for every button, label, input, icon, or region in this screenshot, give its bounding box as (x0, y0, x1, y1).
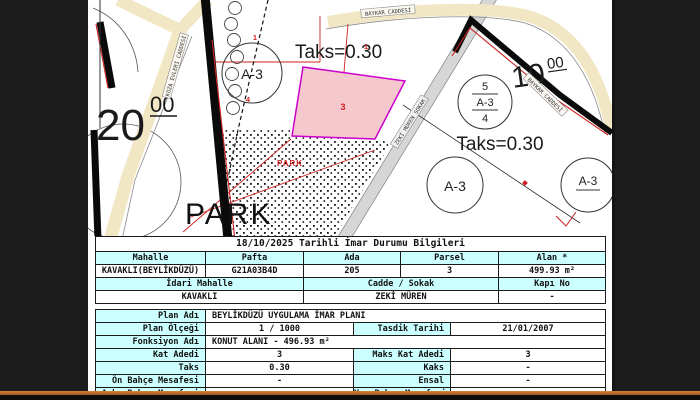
fraction-mid: A-3 (476, 97, 493, 109)
value-ada: 205 (304, 265, 401, 278)
label-plan-olcegi: Plan Ölçeği (96, 323, 206, 336)
value-plan-adi: BEYLİKDÜZÜ UYGULAMA İMAR PLANI (206, 310, 606, 323)
header-pafta: Pafta (206, 252, 304, 265)
table-row: KAVAKLI ZEKİ MÜREN - (96, 291, 606, 304)
header-kapi-no: Kapı No (499, 278, 606, 291)
value-idari-mahalle: KAVAKLI (96, 291, 304, 304)
taks-label-2: Taks=0.30 (456, 134, 543, 155)
value-tasdik-tarihi: 21/01/2007 (451, 323, 606, 336)
label-kat-adedi: Kat Adedi (96, 349, 206, 362)
value-kapi-no: - (499, 291, 606, 304)
parcel-number-3: 3 (340, 102, 345, 112)
fraction-top: 5 (482, 81, 488, 93)
value-kaks: - (451, 362, 606, 375)
value-on-bahce: - (206, 375, 354, 388)
label-tasdik-tarihi: Tasdik Tarihi (354, 323, 451, 336)
value-plan-olcegi: 1 / 1000 (206, 323, 354, 336)
table-row: Plan Adı BEYLİKDÜZÜ UYGULAMA İMAR PLANI (96, 310, 606, 323)
header-mahalle: Mahalle (96, 252, 206, 265)
parcel-number-1: 1 (253, 33, 257, 42)
label-taks: Taks (96, 362, 206, 375)
zone-label-4: A-3 (579, 174, 598, 188)
table-row: KAVAKLI(BEYLİKDÜZÜ) G21A03B4D 205 3 499.… (96, 265, 606, 278)
header-parsel: Parsel (401, 252, 499, 265)
header-cadde-sokak: Cadde / Sokak (304, 278, 499, 291)
label-plan-adi: Plan Adı (96, 310, 206, 323)
table-row: İdari Mahalle Cadde / Sokak Kapı No (96, 278, 606, 291)
value-cadde-sokak: ZEKİ MÜREN (304, 291, 499, 304)
plan-detail-table: Plan Adı BEYLİKDÜZÜ UYGULAMA İMAR PLANI … (95, 309, 606, 391)
fraction-bottom: 4 (482, 113, 488, 125)
value-pafta: G21A03B4D (206, 265, 304, 278)
table-row: Fonksiyon Adı KONUT ALANI - 496.93 m² (96, 336, 606, 349)
label-fonksiyon-adi: Fonksiyon Adı (96, 336, 206, 349)
header-ada: Ada (304, 252, 401, 265)
bottom-dark-strip (0, 395, 700, 400)
imar-durumu-document-page: A-3 5 A-3 4 A-3 A-3 20 00 10 00 Taks=0.3… (88, 0, 615, 391)
taks-label-1: Taks=0.30 (295, 42, 382, 63)
value-maks-kat-adedi: 3 (451, 349, 606, 362)
label-emsal: Ensal (354, 375, 451, 388)
zoning-map: A-3 5 A-3 4 A-3 A-3 20 00 10 00 Taks=0.3… (88, 0, 612, 236)
park-label-small: PARK (277, 159, 303, 168)
value-mahalle: KAVAKLI(BEYLİKDÜZÜ) (96, 265, 206, 278)
value-emsal: - (451, 375, 606, 388)
label-on-bahce: Ön Bahçe Mesafesi (96, 375, 206, 388)
park-label-large: PARK (185, 198, 272, 231)
table-row: Taks 0.30 Kaks - (96, 362, 606, 375)
table-row: Ön Bahçe Mesafesi - Ensal - (96, 375, 606, 388)
header-alan: Alan * (499, 252, 606, 265)
table-row: Plan Ölçeği 1 / 1000 Tasdik Tarihi 21/01… (96, 323, 606, 336)
value-alan: 499.93 m² (499, 265, 606, 278)
app-background-left (0, 0, 88, 400)
header-idari-mahalle: İdari Mahalle (96, 278, 304, 291)
value-fonksiyon-adi: KONUT ALANI - 496.93 m² (206, 336, 606, 349)
imar-info-table: 18/10/2025 Tarihli İmar Durumu Bilgileri… (95, 236, 606, 304)
value-kat-adedi: 3 (206, 349, 354, 362)
label-maks-kat-adedi: Maks Kat Adedi (354, 349, 451, 362)
dimension-20-main: 20 (96, 101, 145, 150)
table-row: Kat Adedi 3 Maks Kat Adedi 3 (96, 349, 606, 362)
zone-label-3: A-3 (444, 178, 466, 194)
value-parsel: 3 (401, 265, 499, 278)
zone-label-1: A-3 (241, 66, 263, 82)
table-row: 18/10/2025 Tarihli İmar Durumu Bilgileri (96, 237, 606, 252)
parcel-number-1b: 1 (364, 42, 368, 51)
report-title: 18/10/2025 Tarihli İmar Durumu Bilgileri (96, 237, 606, 252)
app-background-right (615, 0, 700, 400)
table-row: Mahalle Pafta Ada Parsel Alan * (96, 252, 606, 265)
value-taks: 0.30 (206, 362, 354, 375)
label-kaks: Kaks (354, 362, 451, 375)
